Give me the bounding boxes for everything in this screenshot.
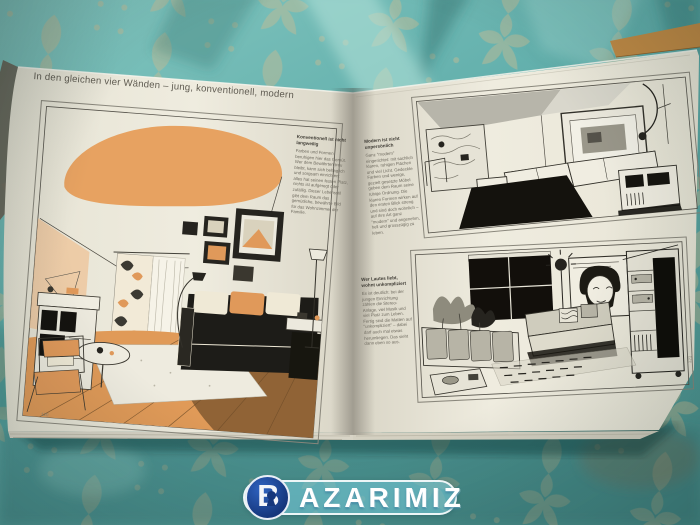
keyhole-icon	[266, 491, 276, 508]
watermark-logo: AZARIMIZ B	[243, 477, 461, 519]
photo-of-open-book: In den gleichen vier Wänden – jung, konv…	[0, 0, 700, 525]
page-number-right: 121	[687, 356, 692, 364]
article-body: Farben und Formen beruhigen hier das Gem…	[291, 148, 351, 219]
page-number-left: 120	[41, 412, 49, 418]
watermark-text: AZARIMIZ	[299, 482, 465, 514]
article-young: Wer Lautes liebt, wohnt unkompliziert Es…	[361, 274, 414, 346]
article-conventional: Konventionell ist nicht langweilig Farbe…	[291, 134, 352, 219]
article-body: Ganz "modern" eingerichtet: mit sachlich…	[365, 149, 421, 237]
article-heading: Wer Lautes liebt, wohnt unkompliziert	[361, 274, 411, 288]
watermark-badge: B	[245, 475, 290, 520]
floor-lamp	[309, 249, 328, 260]
side-table	[286, 318, 327, 333]
article-body: Es ist deutlich: bei der jungen Einricht…	[362, 288, 414, 346]
article-modern: Modern ist nicht unpersönlich Ganz "mode…	[364, 135, 421, 237]
